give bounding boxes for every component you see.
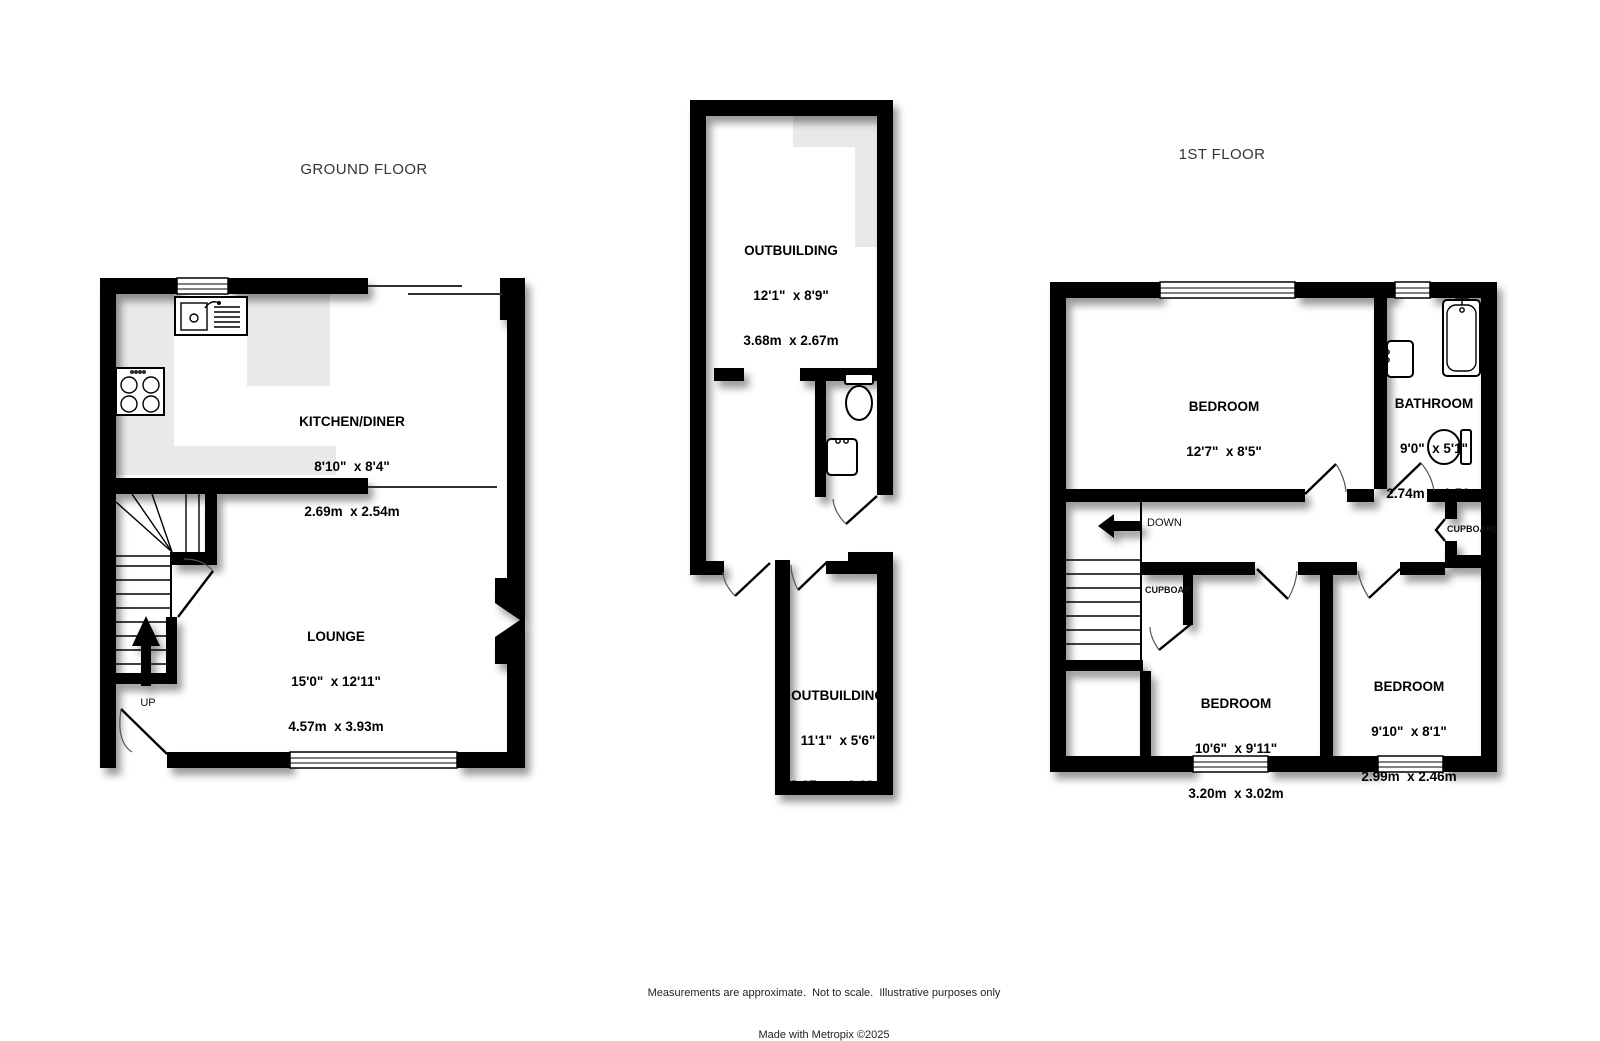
- room-name: BATHROOM: [1334, 396, 1534, 411]
- room-size-metric: 3.68m x 2.67m: [691, 333, 891, 348]
- disclaimer-line2: Made with Metropix ©2025: [524, 1028, 1124, 1041]
- room-size-imperial: 15'0" x 12'11": [236, 674, 436, 689]
- room-name: BEDROOM: [1136, 696, 1336, 711]
- up-label: UP: [130, 697, 166, 709]
- bathroom-window: [1395, 282, 1430, 298]
- disclaimer: Measurements are approximate. Not to sca…: [524, 958, 1124, 1041]
- bedroom1-window: [1160, 282, 1295, 298]
- room-size-imperial: 11'1" x 5'6": [738, 733, 938, 748]
- room-size-metric: 2.99m x 2.46m: [1309, 769, 1509, 784]
- room-size-metric: 2.69m x 2.54m: [252, 504, 452, 519]
- room-size-metric: 2.74m x 1.56m: [1334, 486, 1534, 501]
- lounge-label: LOUNGE 15'0" x 12'11" 4.57m x 3.93m: [236, 599, 436, 764]
- wc-basin-icon: [827, 439, 857, 475]
- room-size-metric: 3.20m x 3.02m: [1136, 786, 1336, 801]
- kitchen-sink-icon: [175, 297, 247, 335]
- ground-floor-title: GROUND FLOOR: [264, 161, 464, 178]
- bedroom1-label: BEDROOM 12'7" x 8'5" 3.83m x 2.56m: [1124, 369, 1324, 534]
- bedroom2-label: BEDROOM 10'6" x 9'11" 3.20m x 3.02m: [1136, 666, 1336, 831]
- outbuilding-bottom-label: OUTBUILDING 11'1" x 5'6" 3.37m x 1.69m: [738, 658, 938, 823]
- floorplan-page: GROUND FLOOR 1ST FLOOR KITCHEN/DINER 8'1…: [0, 0, 1600, 1041]
- bedroom3-label: BEDROOM 9'10" x 8'1" 2.99m x 2.46m: [1309, 649, 1509, 814]
- cupboard-left-label: CUPBOARD: [1145, 585, 1191, 595]
- kitchen-label: KITCHEN/DINER 8'10" x 8'4" 2.69m x 2.54m: [252, 384, 452, 549]
- cupboard-right-label: CUPBOARD: [1447, 524, 1497, 534]
- room-size-imperial: 8'10" x 8'4": [252, 459, 452, 474]
- room-size-imperial: 12'7" x 8'5": [1124, 444, 1324, 459]
- bath-icon: [1443, 298, 1480, 376]
- room-name: BEDROOM: [1124, 399, 1324, 414]
- room-name: OUTBUILDING: [738, 688, 938, 703]
- wc-toilet-icon: [845, 374, 873, 420]
- room-name: BEDROOM: [1309, 679, 1509, 694]
- hob-icon: [116, 368, 164, 415]
- room-size-metric: 3.83m x 2.56m: [1124, 489, 1324, 504]
- down-label: DOWN: [1147, 517, 1182, 529]
- room-size-imperial: 12'1" x 8'9": [691, 288, 891, 303]
- room-name: OUTBUILDING: [691, 243, 891, 258]
- room-name: KITCHEN/DINER: [252, 414, 452, 429]
- room-size-imperial: 9'10" x 8'1": [1309, 724, 1509, 739]
- disclaimer-line1: Measurements are approximate. Not to sca…: [524, 986, 1124, 1000]
- first-floor-title: 1ST FLOOR: [1122, 146, 1322, 163]
- room-size-metric: 4.57m x 3.93m: [236, 719, 436, 734]
- room-name: LOUNGE: [236, 629, 436, 644]
- room-size-imperial: 10'6" x 9'11": [1136, 741, 1336, 756]
- outbuilding-top-label: OUTBUILDING 12'1" x 8'9" 3.68m x 2.67m: [691, 213, 891, 378]
- kitchen-window: [177, 278, 228, 294]
- room-size-metric: 3.37m x 1.69m: [738, 778, 938, 793]
- bathroom-label: BATHROOM 9'0" x 5'1" 2.74m x 1.56m: [1334, 366, 1534, 531]
- room-size-imperial: 9'0" x 5'1": [1334, 441, 1534, 456]
